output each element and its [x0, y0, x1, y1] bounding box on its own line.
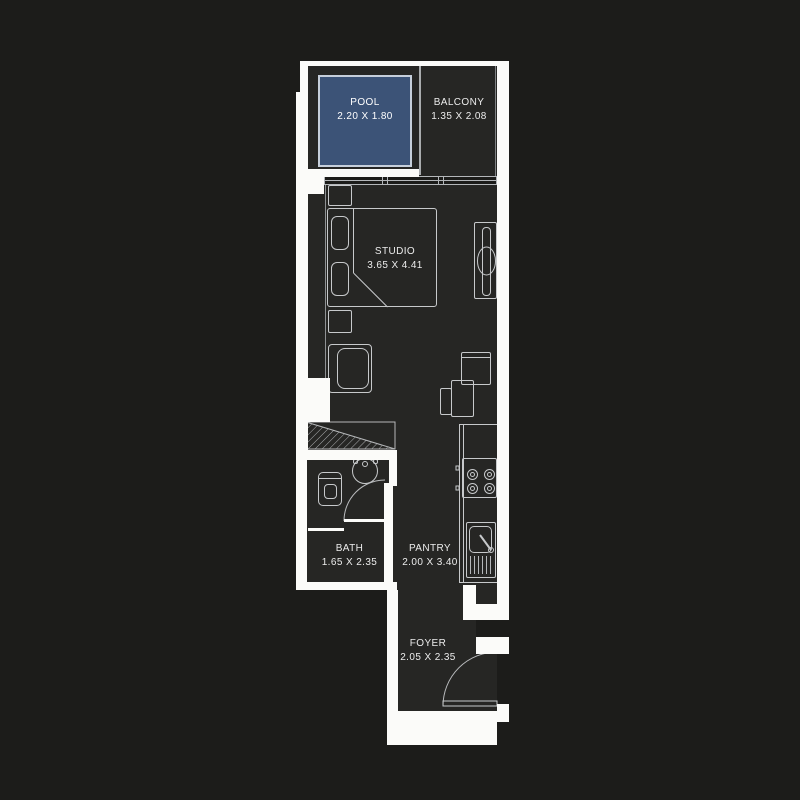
floorplan-page: { "plan": { "rooms": [ {"name": "POOL", …	[0, 0, 800, 800]
room-dims: 2.20 X 1.80	[318, 110, 412, 124]
nightstand	[328, 185, 352, 206]
foyer-label: FOYER 2.05 X 2.35	[378, 637, 478, 665]
sink-drainer	[470, 556, 491, 574]
room-dims: 1.35 X 2.08	[421, 110, 497, 124]
building-notch	[476, 620, 509, 637]
kitchen-sink-bowl	[469, 526, 492, 553]
room-name: BALCONY	[421, 96, 497, 110]
room-name: STUDIO	[340, 245, 450, 259]
bath-label: BATH 1.65 X 2.35	[302, 542, 397, 570]
sliding-window	[324, 176, 497, 185]
wall-left-chunk	[308, 378, 330, 422]
wall-bath-top	[302, 450, 397, 460]
wall-bath-bottom	[302, 582, 397, 590]
bath-inner-wall-line	[308, 528, 344, 531]
pantry-label: PANTRY 2.00 X 3.40	[390, 542, 470, 570]
wall-left	[296, 92, 308, 460]
room-name: PANTRY	[390, 542, 470, 556]
room-name: BATH	[302, 542, 397, 556]
stove	[462, 458, 497, 498]
pool-label: POOL 2.20 X 1.80	[318, 96, 412, 124]
wall-left-upper	[300, 65, 308, 92]
wall-entry-tab	[497, 704, 509, 712]
window-divider	[438, 177, 444, 184]
wall-bath-left	[296, 460, 307, 590]
wall-entry-c	[476, 637, 509, 654]
toilet-tank-line	[319, 478, 341, 479]
bath-doorstop	[389, 480, 397, 486]
wall-bottom-right-tab	[497, 711, 509, 722]
room-name: FOYER	[378, 637, 478, 651]
room-dims: 2.00 X 3.40	[390, 556, 470, 570]
studio-label: STUDIO 3.65 X 4.41	[340, 245, 450, 273]
wall-right	[497, 65, 509, 612]
room-dims: 3.65 X 4.41	[340, 259, 450, 273]
wall-entry-b	[463, 604, 509, 620]
washer	[451, 380, 474, 417]
wall-bottom	[387, 711, 497, 745]
studio-left-line	[325, 184, 326, 378]
window-track-line	[325, 180, 496, 181]
window-divider	[382, 177, 388, 184]
room-dims: 1.65 X 2.35	[302, 556, 397, 570]
wall-top	[300, 61, 509, 66]
wall-studio-topleft	[296, 176, 324, 194]
balcony-label: BALCONY 1.35 X 2.08	[421, 96, 497, 124]
fridge-line	[462, 357, 490, 358]
bath-door-leaf	[344, 519, 385, 522]
room-name: POOL	[318, 96, 412, 110]
room-dims: 2.05 X 2.35	[378, 651, 478, 665]
washer-side	[440, 388, 452, 415]
nightstand	[328, 310, 352, 333]
armchair-seat	[337, 348, 369, 389]
wardrobe-door	[482, 227, 491, 296]
toilet-bowl	[324, 484, 337, 499]
